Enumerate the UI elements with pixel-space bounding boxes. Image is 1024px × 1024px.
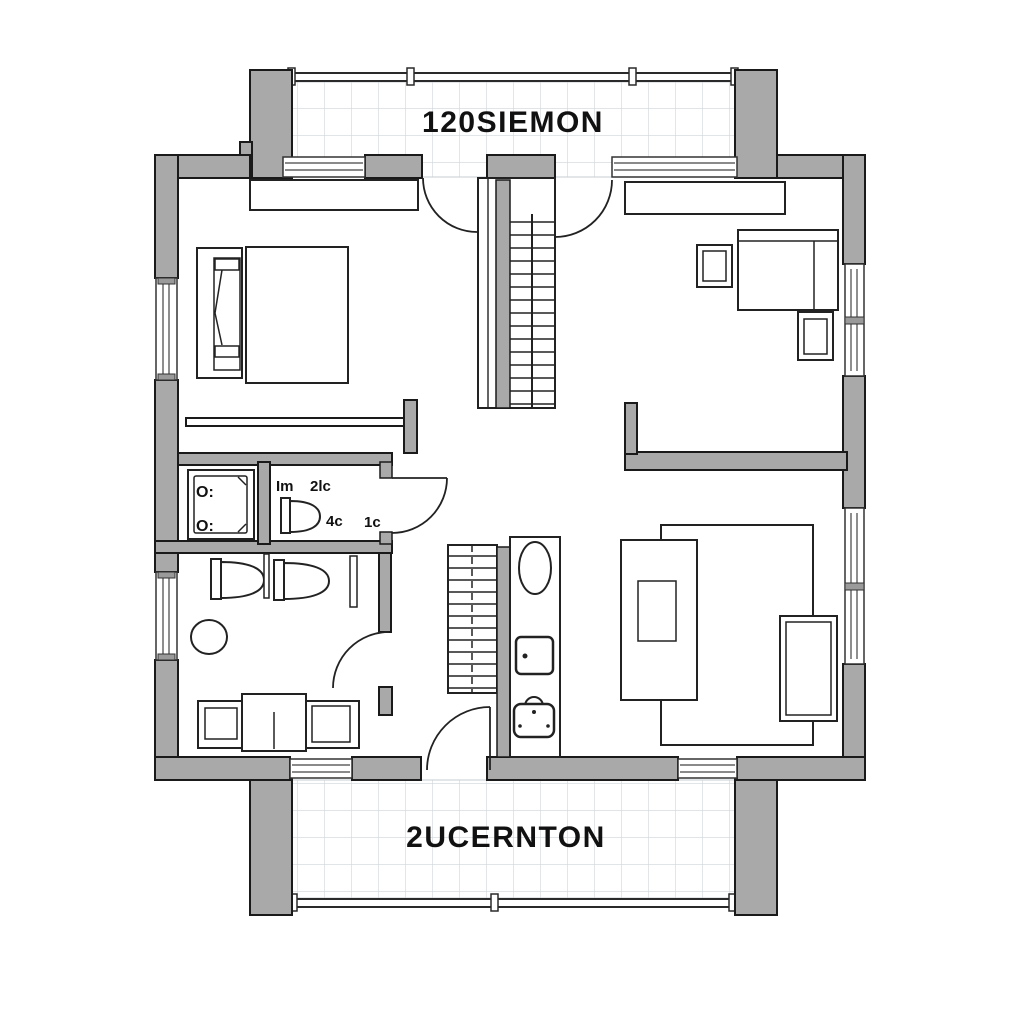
- living-bedroom2-wall: [625, 452, 847, 470]
- shower-mark-bottom: O:: [196, 518, 214, 535]
- stair-wall-strip: [496, 180, 510, 408]
- wc-right-wall-b: [380, 532, 392, 544]
- nightstand: [697, 245, 732, 287]
- wall-top-stair-header: [487, 155, 555, 178]
- wall-bottom-d: [737, 757, 865, 780]
- wall-left-a: [155, 155, 178, 278]
- window-left-lower: [156, 572, 177, 660]
- wc-note-3: 4c: [326, 513, 343, 530]
- stair-side-wall: [497, 547, 510, 757]
- railing-post: [629, 68, 636, 85]
- floor-plan-canvas: 120SIEMON 2UCERNTON: [0, 0, 1024, 1024]
- bathroom: [191, 554, 359, 751]
- door-wc: [392, 478, 447, 533]
- bath-mat-oval: [191, 620, 227, 654]
- shower-mark-top: O:: [196, 484, 214, 501]
- terrace-wall-left: [250, 765, 292, 915]
- window-bottom-2: [678, 759, 737, 778]
- staircase-lower: [448, 545, 510, 757]
- terrace-bottom: 2UCERNTON: [250, 765, 777, 915]
- bedroom-2: [625, 182, 838, 360]
- washing-machine: [516, 637, 553, 674]
- window-top-1: [283, 157, 365, 177]
- balcony-label: 120SIEMON: [422, 106, 604, 139]
- bedroom1-bottom-wall: [186, 418, 406, 426]
- sofa: [780, 616, 837, 721]
- bedside-unit: [197, 248, 242, 378]
- railing-post: [491, 894, 498, 911]
- door-terrace: [427, 707, 490, 770]
- wall-stub-bedroom1: [404, 400, 417, 453]
- window-top-2: [612, 157, 737, 177]
- wall-bottom-a: [155, 757, 290, 780]
- balcony-wall-right: [735, 70, 777, 178]
- cabinet-table: [621, 540, 697, 700]
- shower-wc-divider: [258, 462, 270, 544]
- living-room: [621, 525, 837, 745]
- wall-right-a: [843, 155, 865, 264]
- wardrobe: [625, 182, 785, 214]
- wall-bottom-c: [487, 757, 678, 780]
- wardrobe: [250, 180, 418, 210]
- window-right-upper: [845, 264, 864, 376]
- bath-right-wall-a: [379, 553, 391, 632]
- door-arc-bedroom2-balcony: [555, 180, 612, 237]
- vanity: [198, 694, 359, 751]
- toilet-2: [274, 560, 329, 600]
- bedroom-1: [197, 180, 418, 383]
- wet-column: [510, 537, 560, 757]
- door-arc-bathroom: [333, 632, 389, 688]
- wc-note-4: 1c: [364, 514, 381, 531]
- shower-room: O: O:: [188, 470, 254, 539]
- wall-right-b: [843, 376, 865, 508]
- window-left-upper: [156, 278, 177, 380]
- wall-top-mid1: [365, 155, 422, 178]
- wc-note-2: 2lc: [310, 478, 331, 495]
- terrace-label: 2UCERNTON: [406, 821, 606, 854]
- wc-note-1: Im: [276, 478, 294, 495]
- bath-right-wall-b: [379, 687, 392, 715]
- bath-shelf: [350, 556, 357, 607]
- toilet-divider: [264, 554, 269, 598]
- staircase-upper: [478, 178, 555, 408]
- door-arc-bedroom1-balcony: [423, 178, 477, 232]
- window-bottom-1: [290, 759, 352, 778]
- floor-plan-drawing: 120SIEMON 2UCERNTON: [0, 0, 1024, 1024]
- bed: [246, 247, 348, 383]
- wc-right-wall-a: [380, 462, 392, 478]
- wc-room: Im 2lc 4c 1c: [276, 478, 381, 533]
- wall-bottom-b: [352, 757, 421, 780]
- sink: [514, 697, 554, 737]
- stair-box: [478, 178, 555, 408]
- toilet-tank: [281, 498, 290, 533]
- bed: [738, 230, 838, 310]
- wc-bottom-wall: [155, 541, 392, 553]
- window-right-lower: [845, 508, 864, 664]
- nightstand: [798, 312, 833, 360]
- railing-post: [407, 68, 414, 85]
- wc-top-wall: [178, 453, 392, 465]
- living-wall-stub: [625, 403, 637, 454]
- terrace-wall-right: [735, 765, 777, 915]
- toilet-1: [211, 559, 264, 599]
- toilet-bowl: [290, 501, 320, 532]
